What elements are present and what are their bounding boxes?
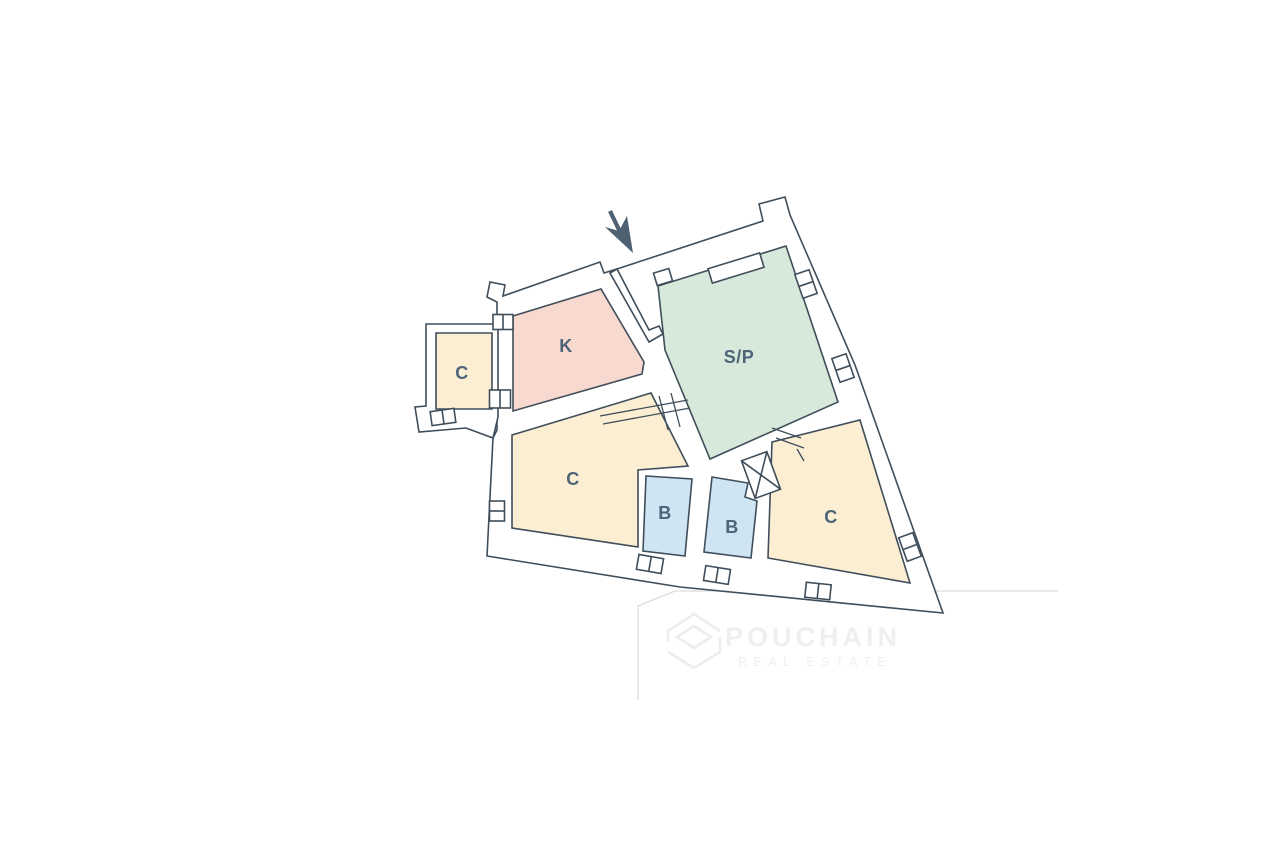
room-label-b-1: B — [658, 503, 672, 523]
room-label-b-2: B — [725, 517, 739, 537]
room-label-c-center: C — [566, 469, 580, 489]
watermark-group: POUCHAIN REAL ESTATE — [638, 591, 1058, 700]
entrance-arrow-icon — [605, 211, 633, 253]
watermark-brand-text: POUCHAIN — [725, 622, 901, 652]
window-symbol — [805, 582, 831, 600]
window-symbol — [493, 315, 513, 330]
window-symbol — [490, 390, 511, 408]
room-label-sp: S/P — [724, 347, 755, 367]
window-symbol — [490, 501, 505, 521]
room-label-c-left: C — [455, 363, 469, 383]
window-symbol — [430, 408, 456, 425]
floor-plan-page: POUCHAIN REAL ESTATE CKS/PCBBC — [0, 0, 1280, 853]
watermark-tagline-text: REAL ESTATE — [738, 655, 892, 669]
room-label-k: K — [559, 336, 573, 356]
window-symbol — [636, 554, 663, 573]
window-symbol — [703, 566, 730, 585]
room-label-c-right: C — [824, 507, 838, 527]
watermark-logo-icon — [668, 614, 720, 668]
floor-plan-svg: POUCHAIN REAL ESTATE CKS/PCBBC — [0, 0, 1280, 853]
